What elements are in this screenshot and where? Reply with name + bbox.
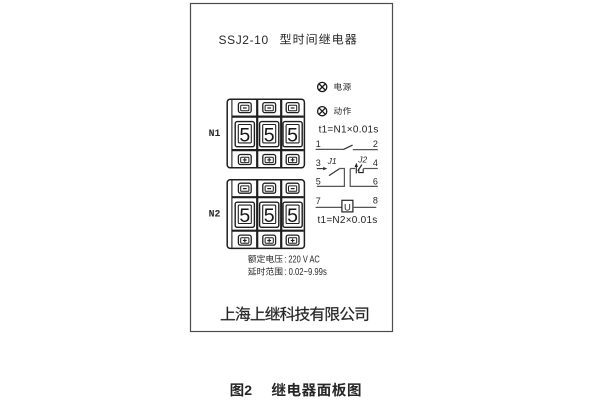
svg-text:t1=N2×0.01s: t1=N2×0.01s: [318, 215, 378, 226]
svg-text:6: 6: [373, 176, 378, 186]
svg-text:1: 1: [316, 139, 321, 149]
svg-text:5: 5: [264, 124, 275, 146]
svg-text:J1: J1: [327, 156, 337, 166]
svg-text:: 0.02~9.99s: : 0.02~9.99s: [284, 267, 327, 278]
svg-text:N1: N1: [209, 128, 221, 139]
svg-text:t1=N1×0.01s: t1=N1×0.01s: [319, 125, 379, 136]
svg-text:5: 5: [287, 124, 298, 146]
svg-text:2: 2: [244, 382, 252, 398]
svg-text:2: 2: [373, 139, 378, 149]
svg-text:8: 8: [373, 196, 378, 206]
svg-text:7: 7: [316, 196, 321, 206]
svg-text:SSJ2-10: SSJ2-10: [219, 33, 269, 47]
svg-text:3: 3: [316, 158, 321, 168]
svg-text:5: 5: [316, 176, 321, 186]
svg-text:U: U: [344, 202, 351, 213]
svg-text:5: 5: [239, 205, 250, 227]
svg-text:N2: N2: [209, 209, 221, 220]
svg-text:: 220 V AC: : 220 V AC: [284, 255, 320, 266]
svg-text:J2: J2: [357, 154, 367, 164]
svg-text:5: 5: [287, 205, 298, 227]
svg-text:5: 5: [264, 205, 275, 227]
svg-text:5: 5: [239, 124, 250, 146]
svg-text:4: 4: [373, 158, 378, 168]
